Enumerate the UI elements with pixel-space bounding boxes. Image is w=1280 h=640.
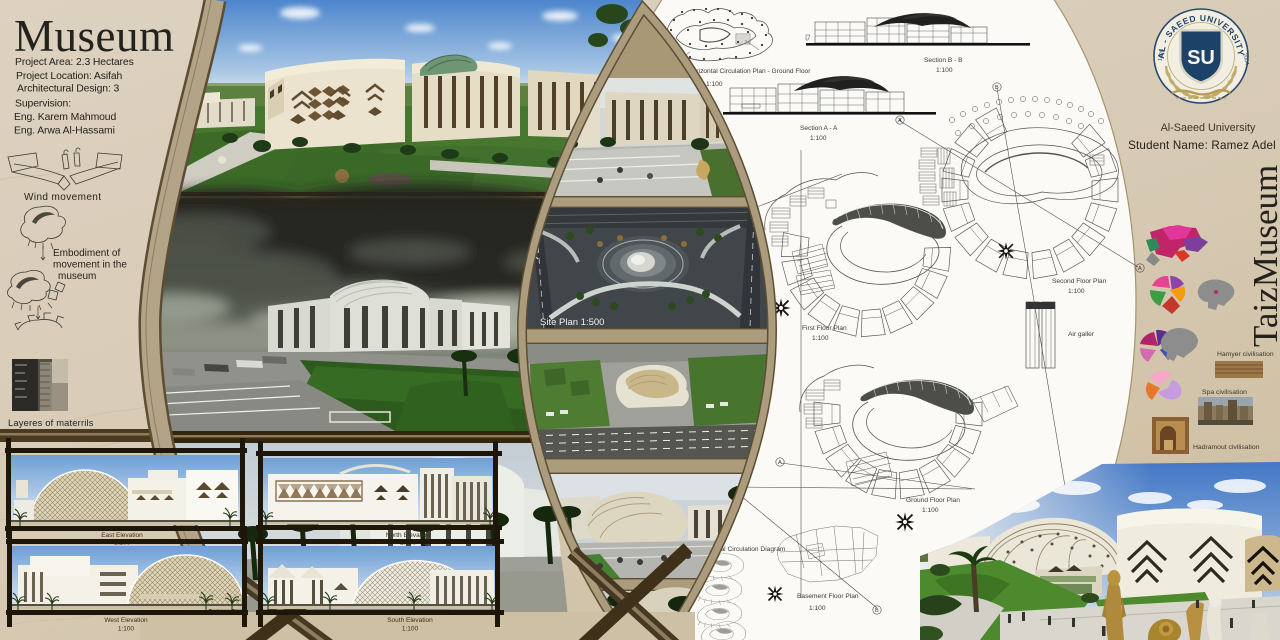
svg-text:Supervision:: Supervision:	[15, 99, 71, 110]
svg-text:TaizMuseum: TaizMuseum	[1246, 165, 1280, 347]
svg-text:Basement Floor Plan: Basement Floor Plan	[797, 593, 859, 600]
svg-text:North Elevation: North Elevation	[386, 532, 431, 539]
svg-text:1:100: 1:100	[402, 626, 419, 633]
svg-text:Student Name: Ramez Adel: Student Name: Ramez Adel	[1128, 139, 1276, 152]
svg-text:Embodiment of: Embodiment of	[53, 248, 120, 259]
svg-text:Section A - A: Section A - A	[800, 125, 838, 132]
svg-text:A: A	[778, 460, 782, 466]
svg-text:East Elevation: East Elevation	[101, 532, 143, 539]
svg-text:Hadramout civilisation: Hadramout civilisation	[1193, 444, 1260, 451]
svg-text:SU: SU	[1187, 47, 1215, 69]
svg-text:Eng. Arwa Al-Hassami: Eng. Arwa Al-Hassami	[14, 126, 115, 137]
svg-text:1:100: 1:100	[922, 507, 939, 514]
svg-text:B: B	[995, 85, 999, 91]
svg-text:Air galler: Air galler	[1068, 331, 1095, 338]
svg-text:West Elevation: West Elevation	[104, 617, 148, 624]
svg-text:movement in the: movement in the	[53, 260, 127, 271]
svg-text:Hamyer civilisation: Hamyer civilisation	[1217, 351, 1274, 358]
svg-text:Layeres of materrils: Layeres of materrils	[8, 418, 94, 428]
svg-text:Project Location: Asifah: Project Location: Asifah	[16, 71, 123, 82]
svg-text:Spa civilisation: Spa civilisation	[1202, 389, 1247, 396]
svg-text:1:100: 1:100	[809, 605, 826, 612]
svg-text:1:100: 1:100	[936, 67, 953, 74]
svg-text:A: A	[1138, 266, 1142, 272]
svg-text:1:100: 1:100	[810, 135, 827, 142]
svg-text:Al-Saeed University: Al-Saeed University	[1161, 122, 1256, 134]
svg-text:Architectural Design: 3: Architectural Design: 3	[17, 84, 120, 95]
svg-text:Horizontal Circulation Plan -: Horizontal Circulation Plan - Ground Flo…	[688, 68, 811, 75]
svg-text:Wind movement: Wind movement	[24, 192, 101, 203]
svg-text:Museum: Museum	[14, 11, 175, 61]
svg-text:Site Plan 1:500: Site Plan 1:500	[540, 317, 604, 328]
svg-text:Eng. Karem Mahmoud: Eng. Karem Mahmoud	[14, 112, 116, 123]
svg-text:1:100: 1:100	[1068, 288, 1085, 295]
svg-text:Ground Floor Plan: Ground Floor Plan	[906, 497, 960, 504]
svg-text:B: B	[875, 608, 879, 614]
svg-text:Second Floor Plan: Second Floor Plan	[1052, 278, 1107, 285]
svg-text:museum: museum	[58, 271, 96, 282]
svg-text:First Floor Plan: First Floor Plan	[802, 325, 847, 332]
svg-text:A: A	[898, 118, 902, 124]
svg-text:1:100: 1:100	[706, 81, 723, 88]
svg-text:Project Area: 2.3 Hectares: Project Area: 2.3 Hectares	[15, 57, 134, 68]
svg-text:1:100: 1:100	[812, 335, 829, 342]
svg-text:Section B - B: Section B - B	[924, 57, 963, 64]
svg-text:1:100: 1:100	[118, 626, 135, 633]
svg-text:South Elevation: South Elevation	[387, 617, 433, 624]
